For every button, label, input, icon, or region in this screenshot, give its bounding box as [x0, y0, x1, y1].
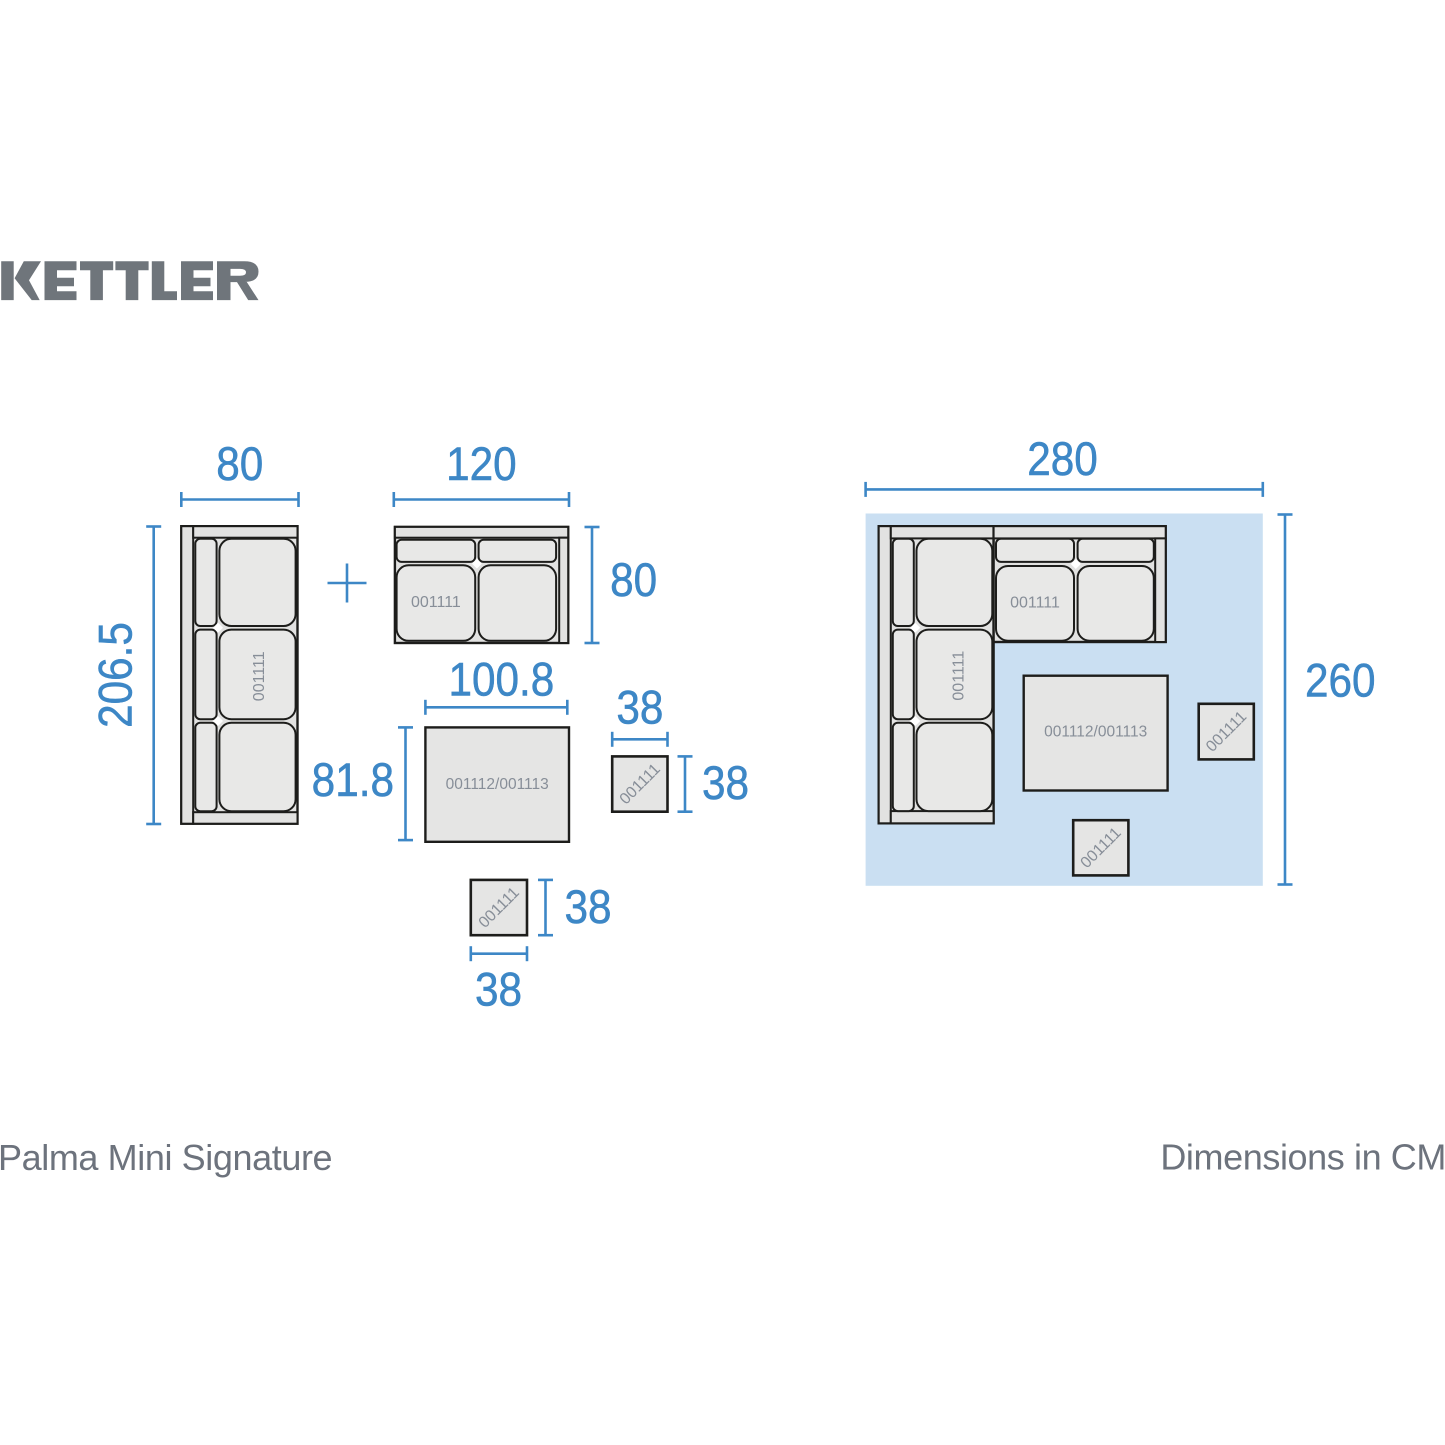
svg-text:001112/001113: 001112/001113: [1044, 724, 1147, 741]
svg-text:206.5: 206.5: [91, 622, 143, 728]
svg-text:80: 80: [216, 439, 263, 491]
svg-text:81.8: 81.8: [312, 755, 394, 807]
svg-text:120: 120: [446, 439, 517, 491]
svg-text:260: 260: [1305, 655, 1376, 707]
svg-text:280: 280: [1027, 434, 1098, 486]
svg-text:80: 80: [610, 555, 657, 607]
svg-text:001111: 001111: [951, 651, 968, 701]
svg-text:100.8: 100.8: [448, 654, 554, 706]
svg-text:001111: 001111: [1010, 595, 1060, 612]
svg-text:001112/001113: 001112/001113: [446, 776, 549, 793]
svg-text:38: 38: [565, 882, 612, 934]
svg-text:001111: 001111: [251, 651, 268, 701]
svg-text:38: 38: [616, 683, 663, 735]
svg-text:Dimensions in CM: Dimensions in CM: [1160, 1137, 1445, 1178]
svg-text:Palma Mini Signature: Palma Mini Signature: [0, 1137, 332, 1178]
svg-text:001111: 001111: [411, 594, 461, 611]
svg-text:38: 38: [475, 965, 522, 1017]
svg-text:38: 38: [702, 758, 749, 810]
